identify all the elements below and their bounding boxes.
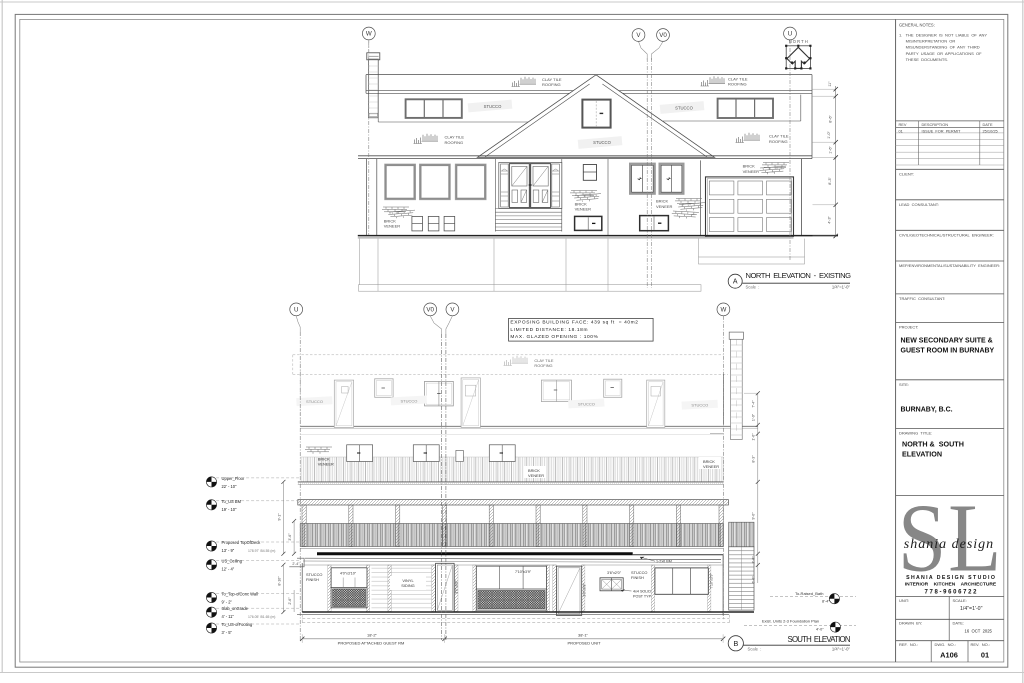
svg-text:DRAWN BY:: DRAWN BY: xyxy=(899,621,922,626)
svg-text:NORTH & SOUTH: NORTH & SOUTH xyxy=(902,440,964,449)
svg-text:VENEER: VENEER xyxy=(528,473,544,478)
svg-text:DWG. NO.:: DWG. NO.: xyxy=(935,642,956,647)
svg-text:STUCCO: STUCCO xyxy=(578,401,595,406)
svg-text:12' - 4": 12' - 4" xyxy=(222,567,235,572)
svg-text:7 7 8 - 9 6 0 6 7 2 2: 7 7 8 - 9 6 0 6 7 2 2 xyxy=(924,589,977,595)
svg-text:7'10"x3'9": 7'10"x3'9" xyxy=(710,573,714,589)
svg-text:To_US-ofFooting: To_US-ofFooting xyxy=(222,622,253,627)
svg-text:B: B xyxy=(733,639,738,648)
svg-text:4'-3": 4'-3" xyxy=(828,216,832,224)
svg-text:A: A xyxy=(733,279,738,286)
svg-text:ELEVATION: ELEVATION xyxy=(902,450,942,459)
svg-text:SIDING: SIDING xyxy=(401,583,414,588)
svg-text:Exist. Units 2-3 Foundation Pl: Exist. Units 2-3 Foundation Plan xyxy=(762,618,819,623)
svg-text:6'-0": 6'-0" xyxy=(752,576,756,584)
svg-text:MEP/ENVIRONMENTAL/SUSTAINABILI: MEP/ENVIRONMENTAL/SUSTAINABILITY ENGINEE… xyxy=(899,263,1000,268)
svg-text:4'0"x3'10": 4'0"x3'10" xyxy=(340,572,357,576)
svg-text:9'-1": 9'-1" xyxy=(277,513,281,521)
svg-text:178.97' /54.55 (m): 178.97' /54.55 (m) xyxy=(248,549,275,553)
svg-text:PROPOSED UNIT: PROPOSED UNIT xyxy=(567,640,601,645)
svg-text:1'-0": 1'-0" xyxy=(827,131,831,139)
svg-text:DATE: DATE xyxy=(983,122,993,127)
svg-text:POST TYP.: POST TYP. xyxy=(633,595,652,599)
svg-text:DRAWING TITLE:: DRAWING TITLE: xyxy=(899,430,932,435)
svg-text:STUCCO: STUCCO xyxy=(400,398,417,403)
svg-text:1. THE DESIGNER IS NOT L: 1. THE DESIGNER IS NOT LIABLE OF ANY xyxy=(899,33,987,38)
svg-text:SITE:: SITE: xyxy=(899,382,909,387)
svg-text:MAX. GLAZED OPENING : 100%: MAX. GLAZED OPENING : 100% xyxy=(510,334,598,340)
svg-text:VENEER: VENEER xyxy=(318,462,334,467)
svg-text:01: 01 xyxy=(981,651,989,660)
svg-text:VENEER: VENEER xyxy=(703,464,719,469)
svg-text:SCALE:: SCALE: xyxy=(953,598,967,603)
svg-text:STUCCO: STUCCO xyxy=(675,105,693,110)
svg-text:U: U xyxy=(788,31,792,38)
svg-text:2'-4": 2'-4" xyxy=(292,562,300,566)
svg-text:3'0"x6'8": 3'0"x6'8" xyxy=(455,580,459,594)
svg-text:U: U xyxy=(294,307,298,314)
svg-text:CIVIL/GEOTECHNICAL/STRUCTURAL: CIVIL/GEOTECHNICAL/STRUCTURAL ENGINEER: xyxy=(899,232,994,237)
svg-text:22' - 10": 22' - 10" xyxy=(222,484,238,489)
svg-text:16 OCT 2025: 16 OCT 2025 xyxy=(965,628,993,633)
svg-text:8'-3": 8'-3" xyxy=(752,455,756,463)
svg-text:ROOFING: ROOFING xyxy=(769,139,788,144)
svg-text:CLIENT:: CLIENT: xyxy=(899,171,914,176)
svg-text:Scale :: Scale : xyxy=(748,646,762,651)
svg-text:MISINTERPRETATION OR: MISINTERPRETATION OR xyxy=(899,39,955,44)
svg-text:To_Top-ofConc Wall: To_Top-ofConc Wall xyxy=(222,592,259,597)
svg-text:8'-4": 8'-4" xyxy=(822,600,830,604)
svg-text:LEAD CONSULTANT:: LEAD CONSULTANT: xyxy=(899,202,939,207)
svg-text:4' - 11": 4' - 11" xyxy=(222,614,235,619)
svg-text:Proposed TopOfDeck: Proposed TopOfDeck xyxy=(222,540,262,545)
svg-text:VENEER: VENEER xyxy=(575,207,592,212)
svg-text:2'-6": 2'-6" xyxy=(288,597,292,605)
svg-text:9'-0": 9'-0" xyxy=(752,512,756,520)
svg-text:EXPOSING BUILDING FACE: 439 sq: EXPOSING BUILDING FACE: 439 sq ft = 40m2 xyxy=(510,320,638,326)
svg-text:8'-6": 8'-6" xyxy=(829,115,833,123)
svg-text:INTERIOR KITCHEN ARCHIEC: INTERIOR KITCHEN ARCHIECTURE xyxy=(905,582,997,588)
svg-text:8'-10": 8'-10" xyxy=(277,576,281,586)
svg-text:8'-3": 8'-3" xyxy=(828,177,832,185)
svg-text:STUCCO: STUCCO xyxy=(484,104,502,109)
svg-text:DATE:: DATE: xyxy=(953,621,964,626)
svg-text:US_Ceiling: US_Ceiling xyxy=(222,559,243,564)
svg-text:Scale :: Scale : xyxy=(746,284,760,289)
svg-text:ROOFING: ROOFING xyxy=(728,82,747,87)
svg-text:FINISH: FINISH xyxy=(631,575,644,580)
svg-text:A106: A106 xyxy=(940,651,958,660)
svg-text:To-Raised_Bath: To-Raised_Bath xyxy=(795,591,823,596)
svg-text:REV: REV xyxy=(899,122,907,127)
svg-text:7'-4": 7'-4" xyxy=(752,400,756,408)
svg-text:4x4 SOLID: 4x4 SOLID xyxy=(633,590,651,594)
svg-text:3'6"x2'0": 3'6"x2'0" xyxy=(607,571,622,575)
svg-text:LIMITED DISTANCE: 18.18m: LIMITED DISTANCE: 18.18m xyxy=(510,327,588,333)
svg-text:1/4"=1'-0": 1/4"=1'-0" xyxy=(960,606,983,612)
svg-text:Upper_Floor: Upper_Floor xyxy=(222,476,245,481)
svg-text:1/4"=1'-0": 1/4"=1'-0" xyxy=(832,646,851,651)
svg-text:VENEER: VENEER xyxy=(743,169,760,174)
svg-text:2'-0": 2'-0" xyxy=(752,556,756,564)
svg-text:ROOFING: ROOFING xyxy=(542,82,561,87)
svg-text:S H A N I A D E S I G N S: S H A N I A D E S I G N S T U D I O xyxy=(906,575,995,581)
svg-text:11": 11" xyxy=(828,81,832,87)
svg-text:THESE DOCUMENTS.: THESE DOCUMENTS. xyxy=(899,57,948,62)
svg-text:PROJECT:: PROJECT: xyxy=(899,325,918,330)
svg-text:FINISH: FINISH xyxy=(306,577,319,582)
svg-text:VENEER: VENEER xyxy=(656,204,673,209)
svg-text:STUCCO: STUCCO xyxy=(691,403,708,408)
svg-text:W: W xyxy=(720,307,726,314)
svg-text:1'-0": 1'-0" xyxy=(752,413,756,421)
svg-text:19' - 10": 19' - 10" xyxy=(222,507,238,512)
svg-text:NEW SECONDARY SUITE &: NEW SECONDARY SUITE & xyxy=(901,338,993,345)
svg-text:REF. NO.:: REF. NO.: xyxy=(899,642,918,647)
svg-text:N O R T H: N O R T H xyxy=(789,39,808,44)
svg-text:18'-2": 18'-2" xyxy=(367,633,378,638)
svg-text:TRAFFIC CONSULTANT:: TRAFFIC CONSULTANT: xyxy=(899,296,945,301)
svg-text:ROOFING: ROOFING xyxy=(445,140,464,145)
svg-text:To_US BM: To_US BM xyxy=(222,499,242,504)
svg-text:3' - 5": 3' - 5" xyxy=(222,630,233,635)
svg-text:Slab_onGrade: Slab_onGrade xyxy=(222,606,249,611)
svg-text:1'-6": 1'-6" xyxy=(829,146,833,154)
svg-text:GENERAL NOTES:: GENERAL NOTES: xyxy=(899,23,935,28)
svg-text:V0: V0 xyxy=(659,32,667,39)
svg-text:STUCCO: STUCCO xyxy=(593,140,611,145)
svg-text:3'0"x6'8": 3'0"x6'8" xyxy=(583,583,587,597)
svg-text:PARTY USAGE OR APPLICATIONS: PARTY USAGE OR APPLICATIONS OF xyxy=(899,51,982,56)
svg-text:VENEER: VENEER xyxy=(384,224,401,229)
svg-text:BURNABY, B.C.: BURNABY, B.C. xyxy=(901,407,953,414)
svg-text:PROPOSED ATTACHED GUEST RM: PROPOSED ATTACHED GUEST RM xyxy=(338,640,405,645)
svg-text:MISUNDERSTANDING OF ANY THI: MISUNDERSTANDING OF ANY THIRD xyxy=(899,45,980,50)
svg-text:SOUTH ELEVATION: SOUTH ELEVATION xyxy=(788,635,850,644)
svg-text:UNIT:: UNIT: xyxy=(899,598,909,603)
svg-text:GUEST ROOM IN BURNABY: GUEST ROOM IN BURNABY xyxy=(901,348,995,355)
svg-text:W: W xyxy=(366,31,372,38)
svg-text:9' - 2": 9' - 2" xyxy=(222,600,233,605)
svg-text:1-2x6 BM: 1-2x6 BM xyxy=(656,560,672,564)
svg-text:13' - 9": 13' - 9" xyxy=(222,548,235,553)
svg-text:DESCRIPTION: DESCRIPTION xyxy=(922,122,949,127)
svg-text:ROOFING: ROOFING xyxy=(534,363,552,368)
svg-text:NORTH ELEVATION - EXISTING: NORTH ELEVATION - EXISTING xyxy=(746,271,852,280)
svg-text:4'-0": 4'-0" xyxy=(816,627,824,631)
svg-text:3'-6": 3'-6" xyxy=(288,533,292,541)
svg-text:REV. NO.:: REV. NO.: xyxy=(971,642,990,647)
svg-text:V0: V0 xyxy=(426,307,434,314)
svg-text:38'-1": 38'-1" xyxy=(578,633,589,638)
svg-text:shania design: shania design xyxy=(904,537,994,552)
svg-text:1'-6": 1'-6" xyxy=(752,433,756,441)
svg-text:1/4"=1'-0": 1/4"=1'-0" xyxy=(832,284,851,289)
svg-text:STUCCO: STUCCO xyxy=(306,399,323,404)
svg-text:176.05' /51.65 (m): 176.05' /51.65 (m) xyxy=(248,615,275,619)
